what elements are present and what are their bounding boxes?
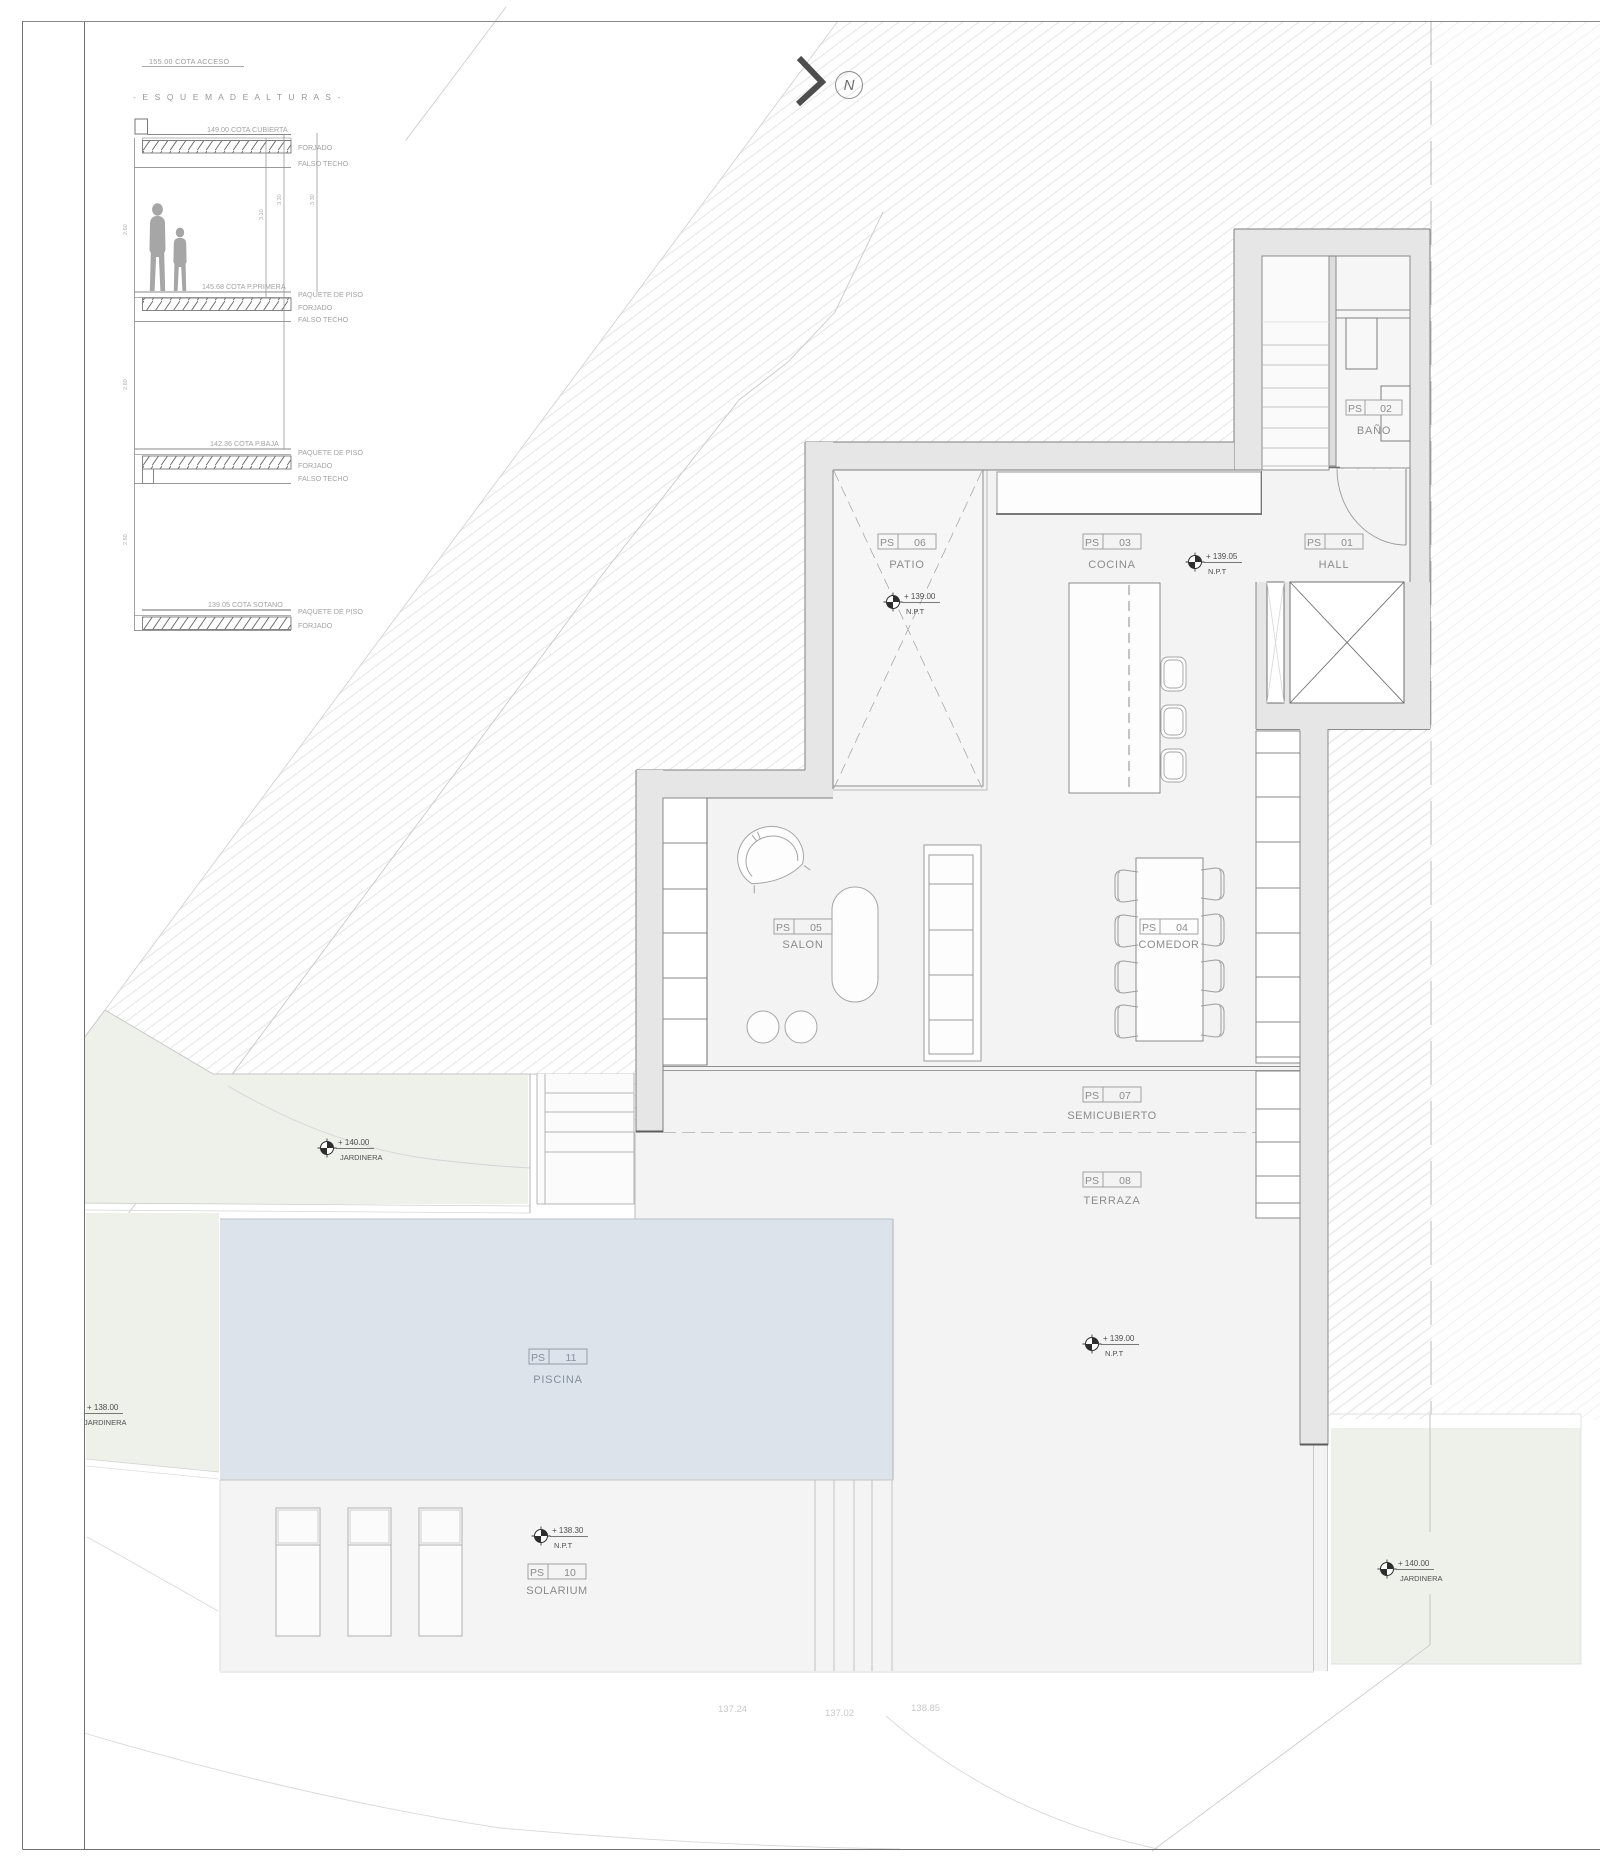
svg-text:PAQUETE DE PISO: PAQUETE DE PISO [298, 448, 363, 457]
svg-text:137.24: 137.24 [718, 1704, 747, 1715]
svg-text:149.00 COTA CUBIERTA: 149.00 COTA CUBIERTA [207, 125, 288, 134]
svg-text:PS: PS [1307, 537, 1321, 549]
svg-text:07: 07 [1119, 1090, 1131, 1102]
svg-text:PS: PS [530, 1567, 544, 1579]
svg-text:SALON: SALON [782, 939, 823, 951]
svg-text:SEMICUBIERTO: SEMICUBIERTO [1067, 1110, 1156, 1122]
svg-text:JARDINERA: JARDINERA [1400, 1574, 1443, 1583]
svg-text:3.30: 3.30 [310, 194, 316, 205]
svg-text:PS: PS [1085, 537, 1099, 549]
svg-text:N.P.T: N.P.T [906, 607, 925, 616]
svg-text:COCINA: COCINA [1088, 559, 1136, 571]
svg-text:PS: PS [1348, 403, 1362, 415]
svg-text:N: N [844, 77, 855, 94]
svg-text:08: 08 [1119, 1175, 1131, 1187]
svg-text:FORJADO: FORJADO [298, 461, 333, 470]
svg-text:TERRAZA: TERRAZA [1084, 1195, 1141, 1207]
svg-text:2.60: 2.60 [123, 534, 129, 545]
svg-text:FORJADO: FORJADO [298, 303, 333, 312]
svg-text:+ 139.05: + 139.05 [1206, 552, 1238, 561]
svg-text:FORJADO: FORJADO [298, 621, 333, 630]
svg-text:HALL: HALL [1319, 559, 1350, 571]
svg-text:2.60: 2.60 [123, 379, 129, 390]
svg-text:3.30: 3.30 [277, 194, 283, 205]
svg-text:155.00 COTA ACCESO: 155.00 COTA ACCESO [149, 57, 229, 66]
svg-text:+ 138.00: + 138.00 [87, 1403, 119, 1412]
svg-text:- E S Q U E M A D E A L T U: - E S Q U E M A D E A L T U R A S - [133, 92, 342, 102]
svg-text:137.02: 137.02 [825, 1708, 854, 1719]
svg-text:3.10: 3.10 [259, 209, 265, 220]
svg-text:PS: PS [776, 922, 790, 934]
svg-text:N.P.T: N.P.T [1105, 1349, 1124, 1358]
svg-text:PAQUETE DE PISO: PAQUETE DE PISO [298, 290, 363, 299]
svg-text:05: 05 [810, 922, 822, 934]
svg-text:138.85: 138.85 [911, 1703, 940, 1714]
svg-text:+ 138.30: + 138.30 [552, 1526, 584, 1535]
svg-text:+ 139.00: + 139.00 [904, 592, 936, 601]
svg-text:FALSO TECHO: FALSO TECHO [298, 474, 349, 483]
svg-text:139.05 COTA SOTANO: 139.05 COTA SOTANO [208, 600, 283, 609]
svg-text:04: 04 [1176, 922, 1188, 934]
svg-text:PS: PS [1085, 1175, 1099, 1187]
svg-text:145.68 COTA P.PRIMERA: 145.68 COTA P.PRIMERA [202, 282, 286, 291]
svg-text:N.P.T: N.P.T [1208, 567, 1227, 576]
svg-text:PS: PS [1142, 922, 1156, 934]
svg-text:PS: PS [1085, 1090, 1099, 1102]
svg-text:FALSO TECHO: FALSO TECHO [298, 159, 349, 168]
svg-text:JARDINERA: JARDINERA [340, 1153, 383, 1162]
svg-text:N.P.T: N.P.T [554, 1541, 573, 1550]
svg-text:+ 139.00: + 139.00 [1103, 1334, 1135, 1343]
svg-text:142.36 COTA P.BAJA: 142.36 COTA P.BAJA [210, 439, 279, 448]
svg-text:01: 01 [1341, 537, 1353, 549]
svg-text:02: 02 [1380, 403, 1392, 415]
svg-text:PATIO: PATIO [889, 559, 924, 571]
svg-text:PS: PS [531, 1352, 545, 1364]
svg-text:FALSO TECHO: FALSO TECHO [298, 315, 349, 324]
svg-text:SOLARIUM: SOLARIUM [526, 1585, 587, 1597]
svg-text:JARDINERA: JARDINERA [84, 1418, 127, 1427]
svg-text:11: 11 [566, 1352, 577, 1364]
svg-text:PAQUETE DE PISO: PAQUETE DE PISO [298, 607, 363, 616]
svg-text:PS: PS [880, 537, 894, 549]
svg-text:10: 10 [564, 1567, 576, 1579]
svg-text:PISCINA: PISCINA [533, 1374, 583, 1386]
svg-text:BAÑO: BAÑO [1357, 424, 1391, 437]
svg-text:FORJADO: FORJADO [298, 143, 333, 152]
svg-text:+ 140.00: + 140.00 [338, 1138, 370, 1147]
svg-text:COMEDOR: COMEDOR [1139, 939, 1200, 951]
svg-text:06: 06 [914, 537, 926, 549]
svg-text:2.60: 2.60 [123, 224, 129, 235]
svg-text:03: 03 [1119, 537, 1131, 549]
svg-text:+ 140.00: + 140.00 [1398, 1559, 1430, 1568]
